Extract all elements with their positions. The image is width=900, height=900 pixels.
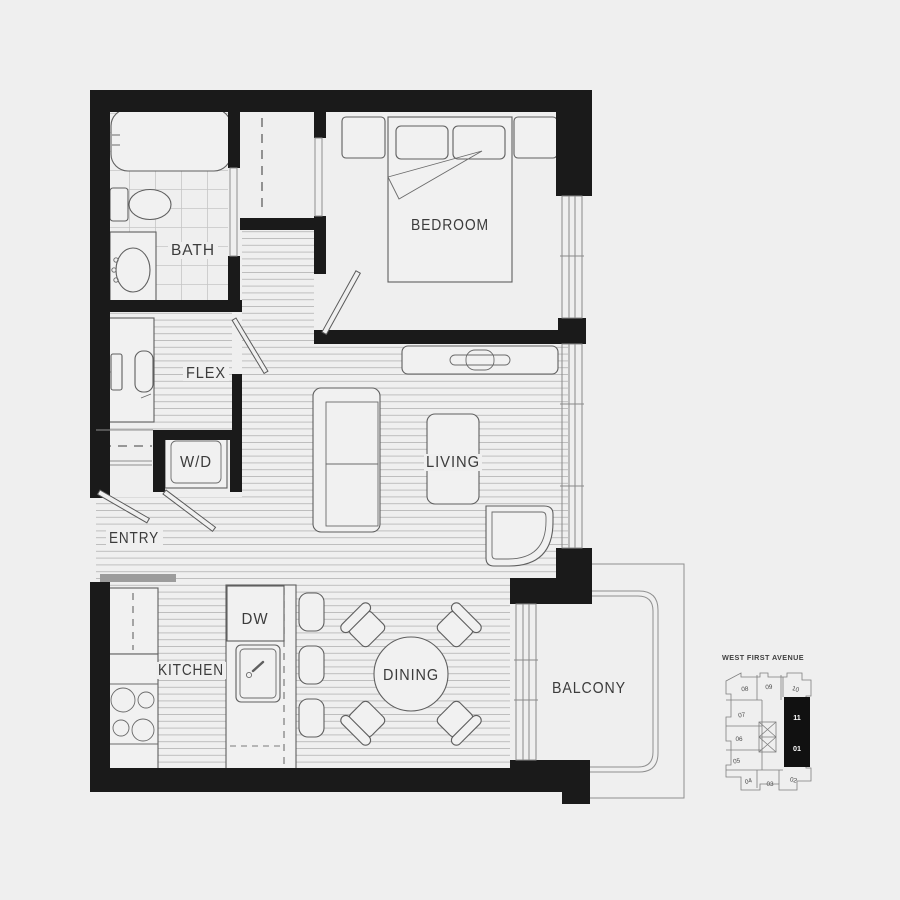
nightstand-left bbox=[342, 117, 385, 158]
balcony-label: BALCONY bbox=[552, 680, 626, 697]
entry-label: ENTRY bbox=[109, 530, 159, 547]
bath-pocket-door bbox=[230, 168, 237, 256]
highlighted-unit-11: 11 bbox=[793, 713, 801, 722]
fridge bbox=[108, 588, 158, 654]
floor-plan-page: BATH BEDROOM FLEX W/D ENTRY LIVING KITCH… bbox=[0, 0, 900, 900]
unit-04: 04 bbox=[744, 777, 753, 786]
bathtub bbox=[111, 109, 231, 171]
bar-stool bbox=[299, 646, 324, 684]
floor-plan-drawing: BATH BEDROOM FLEX W/D ENTRY LIVING KITCH… bbox=[0, 0, 900, 900]
dishwasher-label: DW bbox=[242, 611, 269, 628]
street-label: WEST FIRST AVENUE bbox=[722, 653, 804, 662]
balcony-sliding-door bbox=[514, 604, 538, 760]
highlighted-unit: 11 01 bbox=[784, 697, 810, 767]
washer-dryer-label: W/D bbox=[180, 454, 212, 471]
unit-09: 09 bbox=[765, 684, 773, 692]
bath-label: BATH bbox=[171, 242, 215, 259]
nightstand-right bbox=[514, 117, 557, 158]
flex-label: FLEX bbox=[186, 365, 226, 382]
kitchen-label: KITCHEN bbox=[158, 662, 224, 679]
kitchen-counter bbox=[108, 654, 158, 770]
unit-10: 10 bbox=[791, 685, 800, 694]
elevator-core bbox=[759, 722, 776, 752]
bedroom-door-leaf bbox=[322, 271, 360, 335]
bedroom-window bbox=[560, 196, 584, 318]
living-label: LIVING bbox=[426, 454, 480, 471]
dresser-console bbox=[402, 346, 558, 374]
bar-stool bbox=[299, 699, 324, 737]
unit-06: 06 bbox=[735, 736, 743, 743]
kitchen-sink bbox=[236, 645, 280, 702]
bar-stool bbox=[299, 593, 324, 631]
closet-sliding-door bbox=[315, 138, 322, 216]
unit-08: 08 bbox=[741, 686, 749, 694]
highlighted-unit-01: 01 bbox=[793, 744, 801, 753]
sofa bbox=[313, 388, 380, 532]
dining-label: DINING bbox=[383, 667, 439, 684]
unit-03: 03 bbox=[766, 781, 774, 788]
unit-07: 07 bbox=[738, 711, 746, 719]
key-plan: WEST FIRST AVENUE 11 01 08 09 10 07 06 0… bbox=[722, 653, 811, 790]
bed bbox=[388, 117, 512, 282]
toilet bbox=[110, 188, 171, 221]
bath-vanity bbox=[110, 232, 156, 305]
bedroom-label: BEDROOM bbox=[411, 217, 489, 234]
unit-05: 05 bbox=[733, 757, 742, 765]
